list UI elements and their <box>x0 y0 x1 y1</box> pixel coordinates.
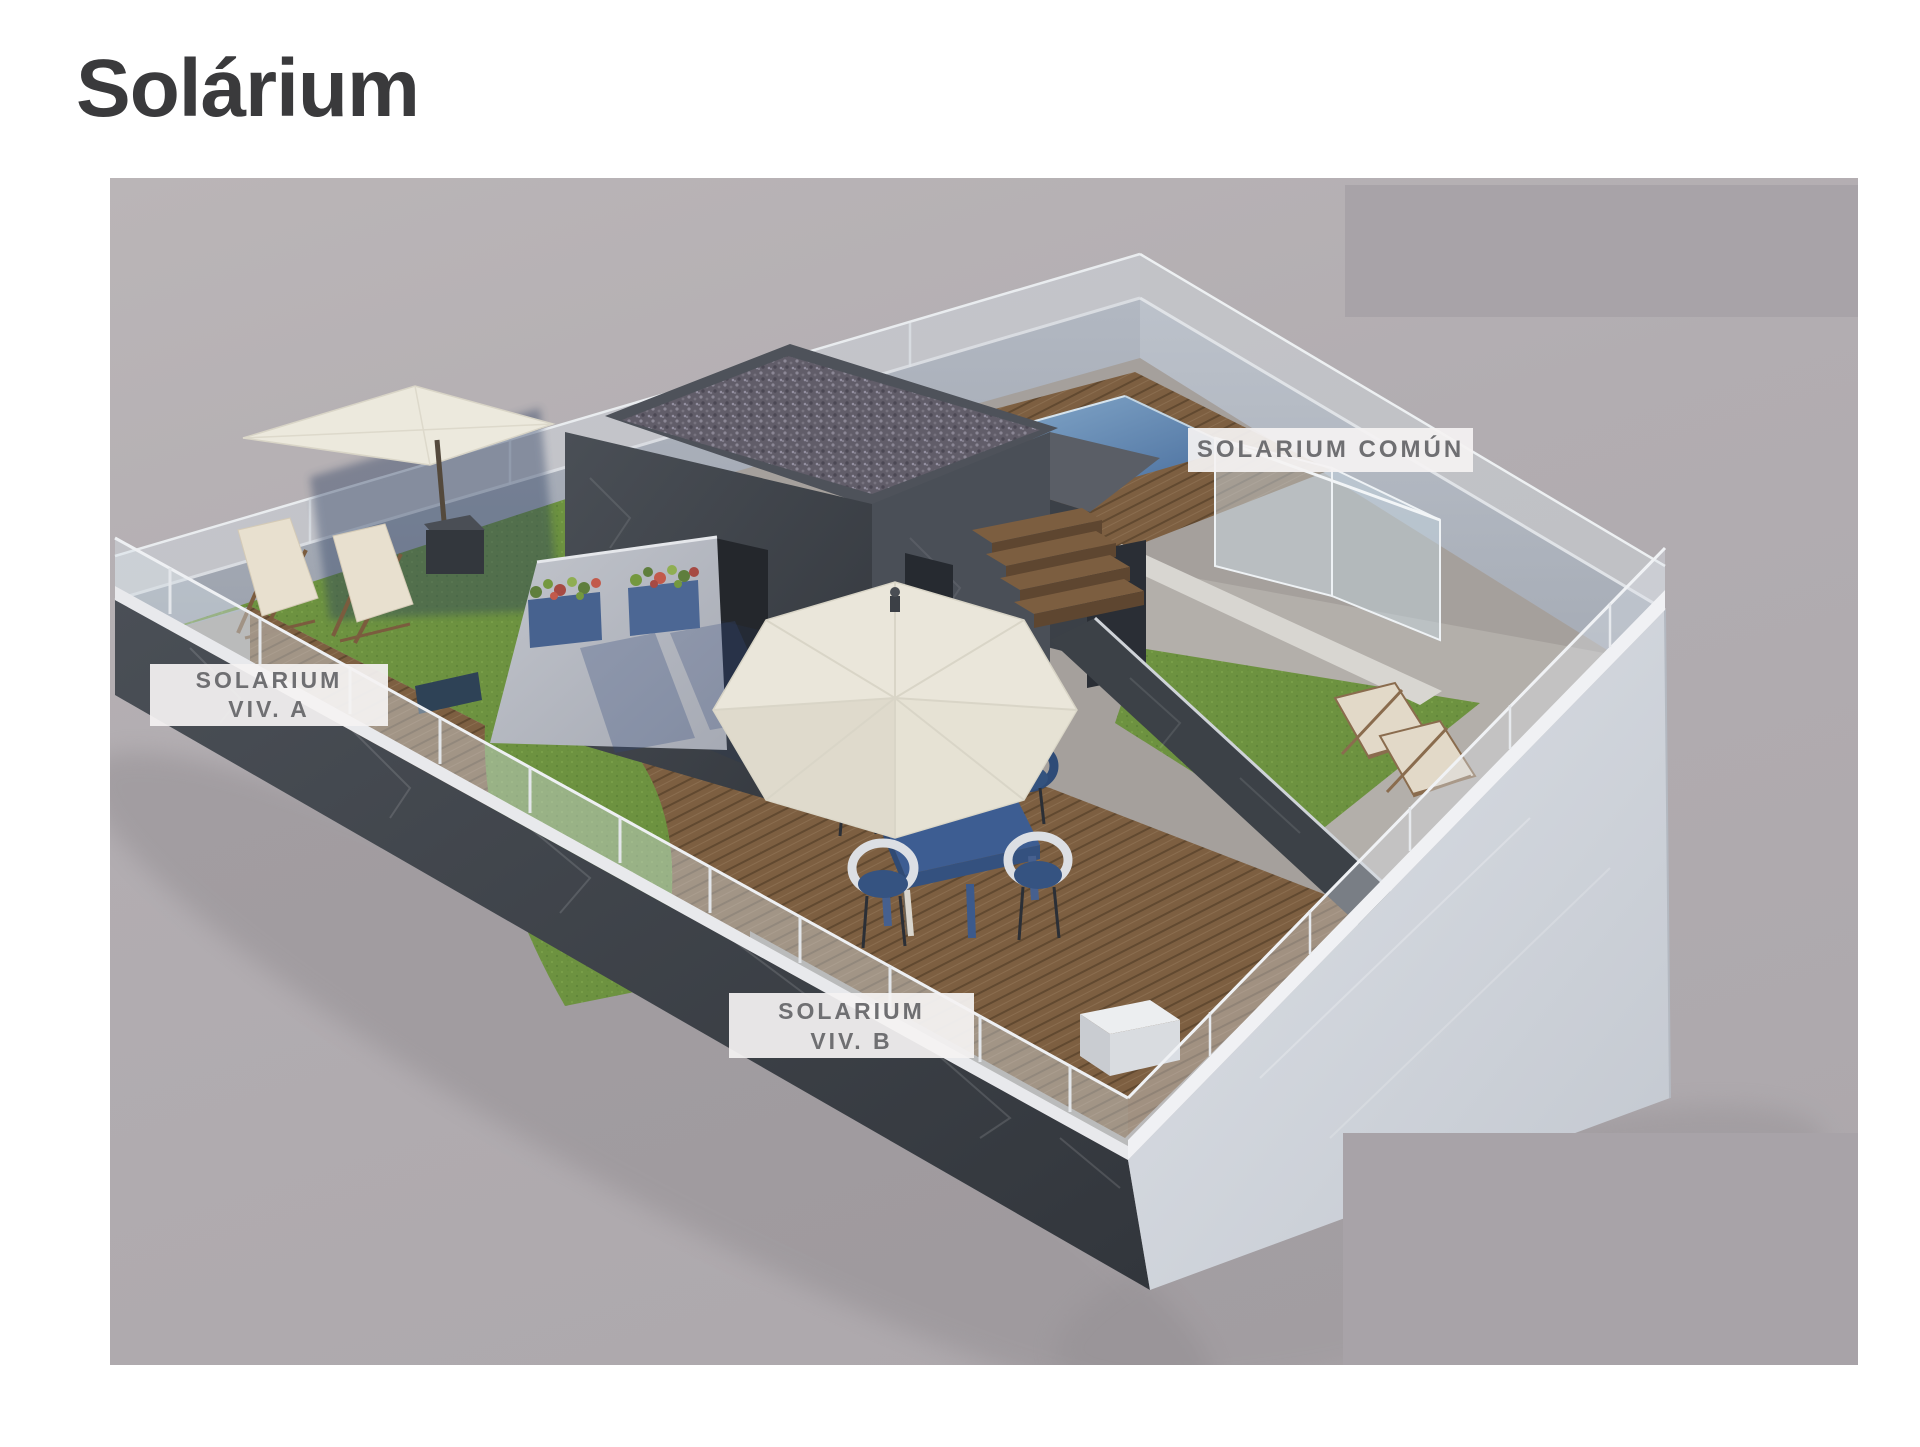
watermark-cover-bottom <box>1343 1133 1858 1365</box>
zone-label-line1: SOLARIUM <box>150 666 388 695</box>
blue-planter <box>528 592 602 648</box>
solarium-3d-render: SOLARIUM COMÚN SOLARIUM VIV. A SOLARIUM … <box>110 178 1858 1365</box>
zone-label-solarium-viv-a: SOLARIUM VIV. A <box>150 664 388 726</box>
zone-label-line1: SOLARIUM <box>729 996 974 1026</box>
page-title: Solárium <box>76 44 419 134</box>
zone-label-line2: VIV. B <box>729 1026 974 1056</box>
zone-label-text: SOLARIUM COMÚN <box>1188 436 1473 464</box>
zone-label-line2: VIV. A <box>150 695 388 724</box>
zone-label-solarium-comun: SOLARIUM COMÚN <box>1188 428 1473 472</box>
zone-label-solarium-viv-b: SOLARIUM VIV. B <box>729 993 974 1058</box>
blue-planter <box>628 580 700 636</box>
watermark-cover-top <box>1345 185 1858 317</box>
parasol-viv-b <box>713 582 1077 838</box>
